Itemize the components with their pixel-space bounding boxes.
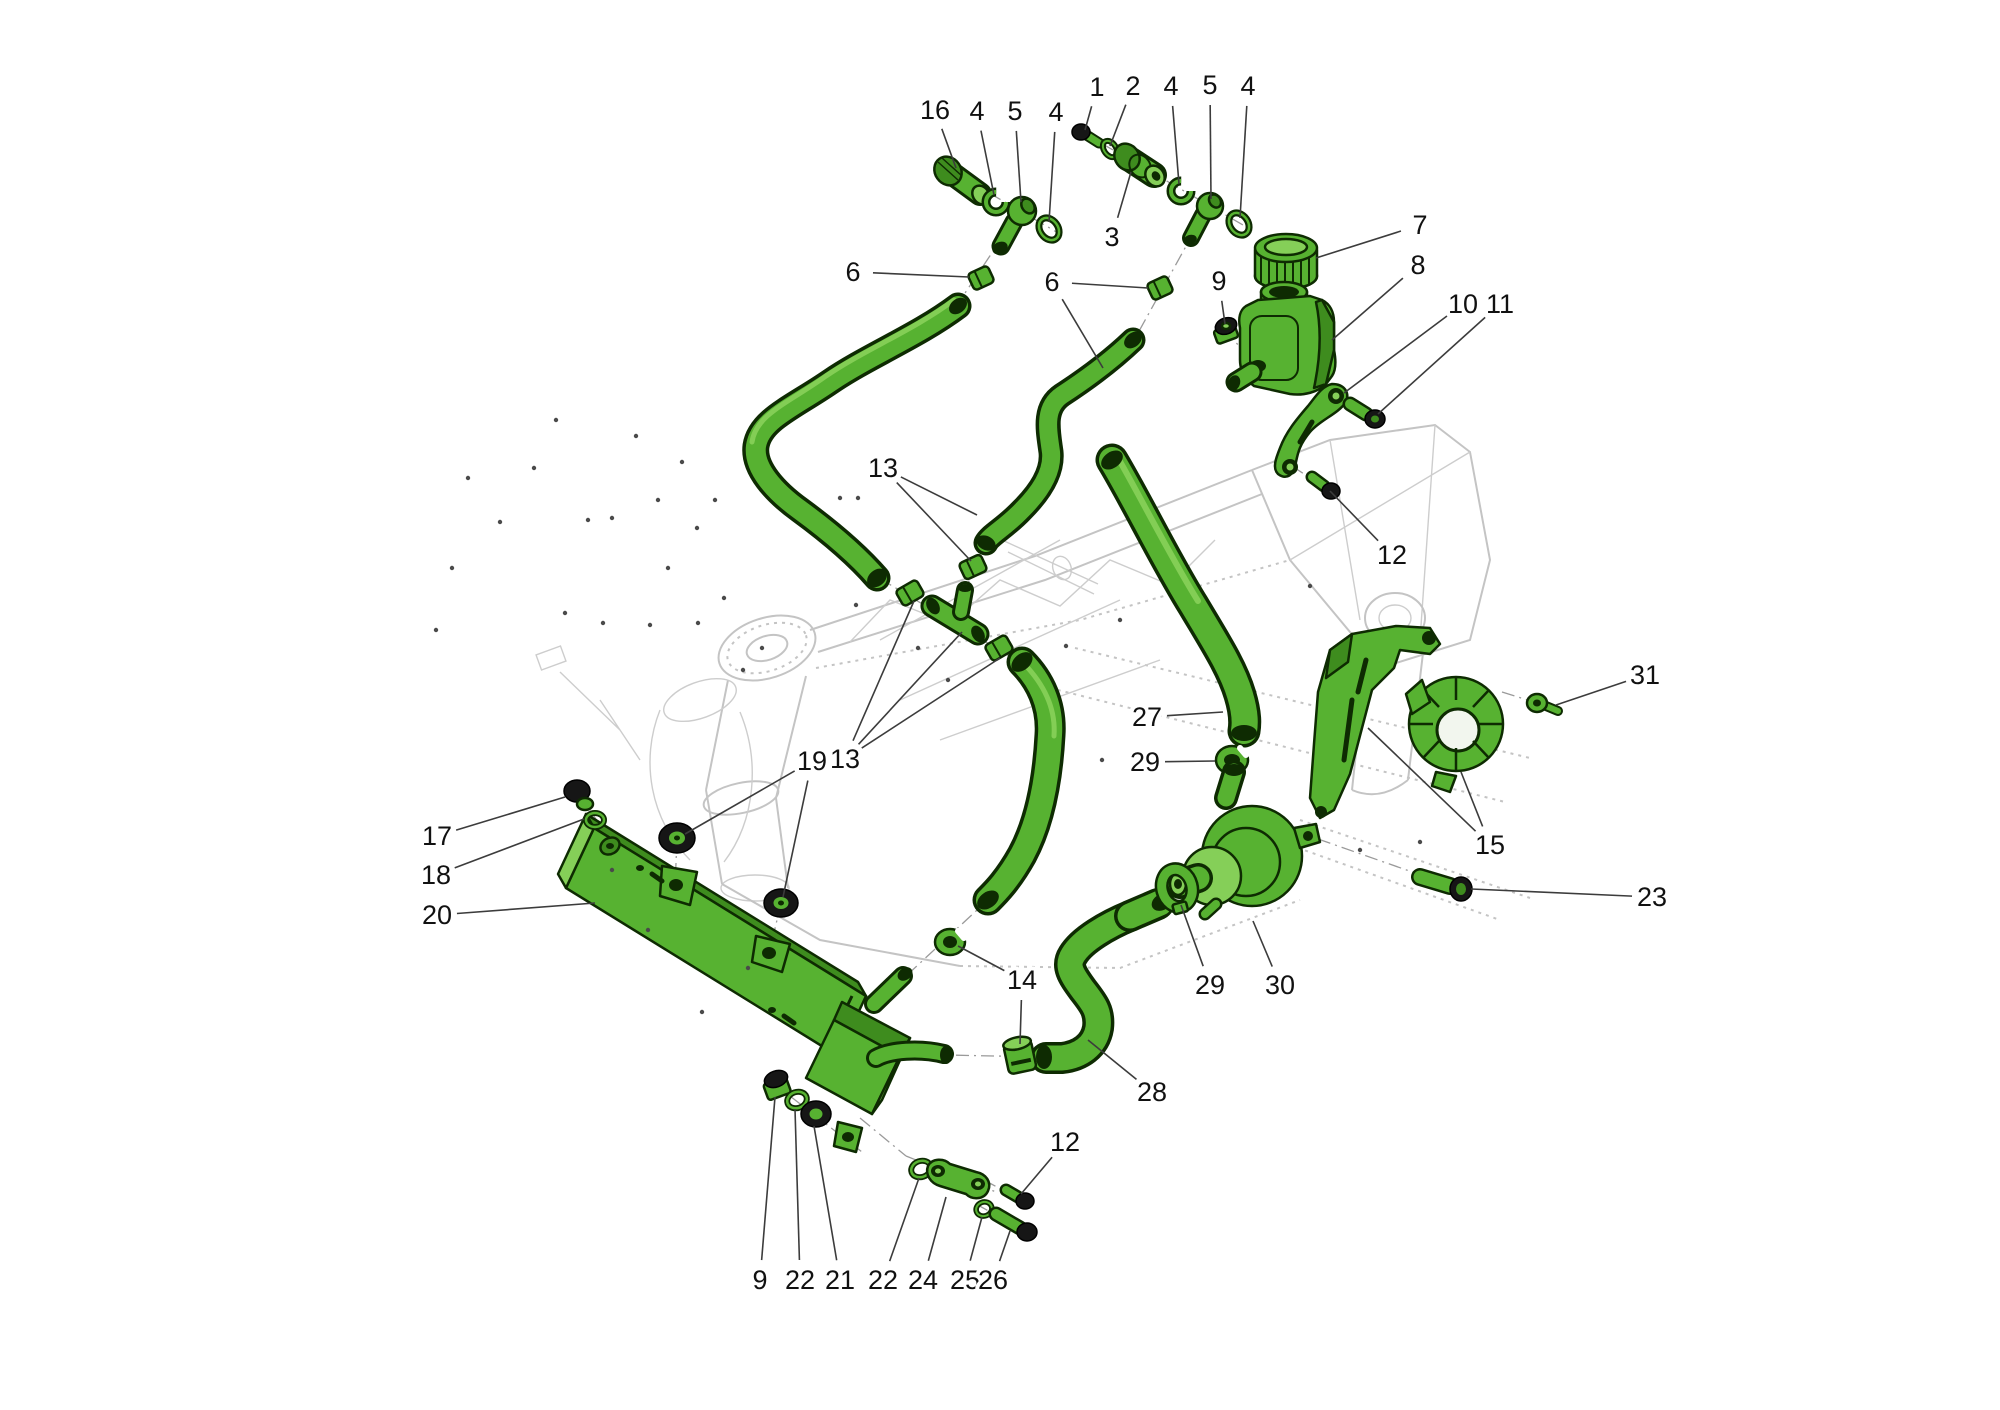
callout-label: 22 (785, 1265, 815, 1295)
leader-line (901, 477, 977, 515)
callout-label: 23 (1637, 882, 1667, 912)
speckle-dot (1118, 618, 1122, 622)
callout-26: 26 (978, 1231, 1010, 1295)
leader-line (1461, 772, 1483, 826)
callout-2: 2 (1110, 71, 1141, 146)
callout-label: 13 (868, 453, 898, 483)
centerline (1318, 839, 1418, 874)
callout-label: 22 (868, 1265, 898, 1295)
speckle-dot (1100, 758, 1104, 762)
leader-line (1173, 106, 1179, 184)
callout-4: 4 (1163, 71, 1179, 184)
callout-label: 4 (969, 96, 984, 126)
parts-diagram-page: 1245416454366789101112132729311523293028… (0, 0, 2000, 1410)
speckle-dot (610, 516, 614, 520)
callout-label: 2 (1125, 71, 1140, 101)
callout-label: 4 (1163, 71, 1178, 101)
speckle-dot (916, 646, 920, 650)
speckle-dot (741, 668, 745, 672)
speckle-dot (601, 621, 605, 625)
callout-label: 16 (920, 95, 950, 125)
leader-line (1165, 761, 1215, 762)
callout-label: 25 (950, 1265, 980, 1295)
callout-3: 3 (1104, 172, 1131, 252)
callout-5: 5 (1007, 96, 1022, 202)
speckle-dot (498, 520, 502, 524)
leader-line (456, 797, 565, 830)
speckle-dot (838, 496, 842, 500)
speckle-dot (1308, 584, 1312, 588)
grommet-19b (764, 889, 798, 917)
centerline (860, 1118, 906, 1156)
callout-9: 9 (752, 1097, 775, 1295)
callout-label: 21 (825, 1265, 855, 1295)
callout-label: 29 (1195, 970, 1225, 1000)
bolt-11 (1350, 404, 1385, 428)
callout-label: 13 (830, 744, 860, 774)
leader-line (859, 632, 962, 744)
callout-24: 24 (908, 1197, 946, 1295)
speckle-dot (1358, 848, 1362, 852)
callout-28: 28 (1088, 1040, 1167, 1107)
callout-label: 11 (1486, 289, 1514, 319)
leader-line (1016, 131, 1021, 202)
tee-fitting (923, 584, 987, 645)
connector-ring-14 (935, 929, 965, 955)
leader-line (873, 273, 969, 277)
leader-line (1110, 105, 1126, 146)
speckle-dot (648, 623, 652, 627)
speckle-dot (646, 928, 650, 932)
cooling-system-exploded-diagram: 1245416454366789101112132729311523293028… (0, 0, 2000, 1410)
callout-17: 17 (422, 797, 565, 851)
leader-line (1330, 491, 1378, 541)
leader-line (1000, 1231, 1010, 1261)
leader-line (1344, 316, 1447, 393)
hose-pump-to-radiator (1036, 890, 1176, 1069)
hose-tee-to-radiator (974, 648, 1055, 913)
bracket-24 (927, 1160, 989, 1198)
callout-29: 29 (1130, 747, 1215, 777)
o-ring-4d (1225, 209, 1254, 239)
callout-label: 29 (1130, 747, 1160, 777)
speckle-dot (563, 611, 567, 615)
callout-12: 12 (1021, 1127, 1080, 1194)
callout-label: 19 (797, 746, 827, 776)
clamp-cover-15 (1406, 677, 1503, 792)
callout-8: 8 (1332, 250, 1426, 340)
speckle-dot (1418, 840, 1422, 844)
expansion-tank-8 (1226, 282, 1336, 395)
callout-label: 9 (1211, 266, 1226, 296)
callout-20: 20 (422, 900, 595, 930)
screw-31 (1527, 694, 1558, 712)
leader-line (1378, 317, 1485, 414)
leader-line (970, 1217, 982, 1261)
callout-label: 3 (1104, 222, 1119, 252)
callout-label: 30 (1265, 970, 1295, 1000)
bolt-17 (564, 780, 593, 810)
union-fitting-3 (1109, 139, 1169, 191)
bolt-26 (996, 1214, 1037, 1241)
callout-label: 27 (1132, 702, 1162, 732)
hose-clip-6b (1146, 275, 1174, 301)
leader-line (1167, 712, 1223, 716)
callout-label: 20 (422, 900, 452, 930)
hose-upper-middle (974, 328, 1145, 553)
speckle-dot (666, 566, 670, 570)
leader-line (1253, 921, 1272, 967)
speckle-dot (586, 518, 590, 522)
speckle-dot (713, 498, 717, 502)
speckle-dot (856, 496, 860, 500)
callout-14: 14 (958, 946, 1037, 1044)
radiator (558, 814, 952, 1152)
leader-line (1316, 231, 1401, 258)
retaining-clip-4c (1171, 181, 1191, 201)
callout-9: 9 (1211, 266, 1226, 324)
leader-line (457, 903, 595, 913)
callout-label: 17 (422, 821, 452, 851)
callout-label: 14 (1007, 965, 1037, 995)
frame-speckles (434, 418, 1422, 1014)
leader-line (958, 946, 1004, 971)
callout-label: 12 (1377, 540, 1407, 570)
speckle-dot (634, 434, 638, 438)
callout-label: 7 (1412, 210, 1427, 240)
grommet-19a (659, 823, 695, 853)
speckle-dot (722, 596, 726, 600)
leader-line (890, 1178, 919, 1261)
callout-6: 6 (845, 257, 969, 287)
callout-label: 4 (1048, 97, 1063, 127)
speckle-dot (946, 678, 950, 682)
leader-line (1049, 132, 1055, 222)
callout-label: 5 (1202, 70, 1217, 100)
callout-4: 4 (1240, 71, 1256, 218)
leader-line (1072, 283, 1148, 288)
callout-label: 8 (1410, 250, 1425, 280)
leader-line (795, 1109, 799, 1260)
tank-bracket-10 (1275, 384, 1347, 477)
speckle-dot (746, 966, 750, 970)
callout-30: 30 (1253, 921, 1295, 1000)
hose-tank-to-pump (1098, 447, 1257, 741)
callout-4: 4 (1048, 97, 1063, 222)
speckle-dot (450, 566, 454, 570)
hose-clip-13b (958, 554, 987, 580)
banjo-union-5a (990, 196, 1037, 257)
leader-line (1062, 299, 1103, 368)
speckle-dot (532, 466, 536, 470)
bolt-12-upper (1312, 477, 1340, 499)
speckle-dot (700, 1010, 704, 1014)
leader-line (685, 771, 795, 834)
callout-label: 12 (1050, 1127, 1080, 1157)
speckle-dot (1064, 644, 1068, 648)
leader-line (1118, 172, 1131, 218)
speckle-dot (610, 868, 614, 872)
leader-line (783, 781, 808, 897)
callout-label: 10 (1448, 289, 1478, 319)
leader-line (1210, 105, 1211, 199)
callout-label: 15 (1475, 830, 1505, 860)
speckle-dot (656, 498, 660, 502)
leader-line (1332, 278, 1403, 340)
callout-22: 22 (785, 1109, 815, 1295)
bolt-12-lower (1006, 1190, 1034, 1209)
speckle-dot (854, 603, 858, 607)
callout-5: 5 (1202, 70, 1217, 199)
speckle-dot (695, 526, 699, 530)
hose-upper-left (752, 294, 970, 591)
speckle-dot (696, 621, 700, 625)
hose-clip-6a (967, 265, 995, 291)
callout-label: 5 (1007, 96, 1022, 126)
callout-label: 18 (421, 860, 451, 890)
callout-label: 4 (1240, 71, 1255, 101)
callout-12: 12 (1330, 491, 1407, 570)
callout-label: 1 (1089, 72, 1104, 102)
retaining-clip-4a (986, 192, 1006, 212)
grommet-21 (801, 1101, 831, 1127)
callout-label: 24 (908, 1265, 938, 1295)
callout-label: 31 (1630, 660, 1660, 690)
callout-label: 9 (752, 1265, 767, 1295)
speckle-dot (554, 418, 558, 422)
speckle-dot (434, 628, 438, 632)
leader-line (1556, 681, 1626, 705)
bolt-23 (1420, 877, 1472, 901)
leader-line (928, 1197, 946, 1261)
leader-line (1471, 889, 1632, 896)
callout-27: 27 (1132, 702, 1223, 732)
callout-label: 6 (845, 257, 860, 287)
speckle-dot (680, 460, 684, 464)
callout-13: 13 (868, 453, 977, 561)
leader-line (762, 1097, 775, 1260)
leader-line (1240, 106, 1247, 218)
callout-label: 6 (1044, 267, 1059, 297)
callout-label: 28 (1137, 1077, 1167, 1107)
callout-1: 1 (1085, 72, 1105, 130)
speckle-dot (466, 476, 470, 480)
speckle-dot (760, 646, 764, 650)
grommet-9-upper (1213, 315, 1239, 345)
callout-label: 26 (978, 1265, 1008, 1295)
callout-23: 23 (1471, 882, 1667, 912)
leader-line (1021, 1157, 1052, 1194)
callout-31: 31 (1556, 660, 1660, 705)
